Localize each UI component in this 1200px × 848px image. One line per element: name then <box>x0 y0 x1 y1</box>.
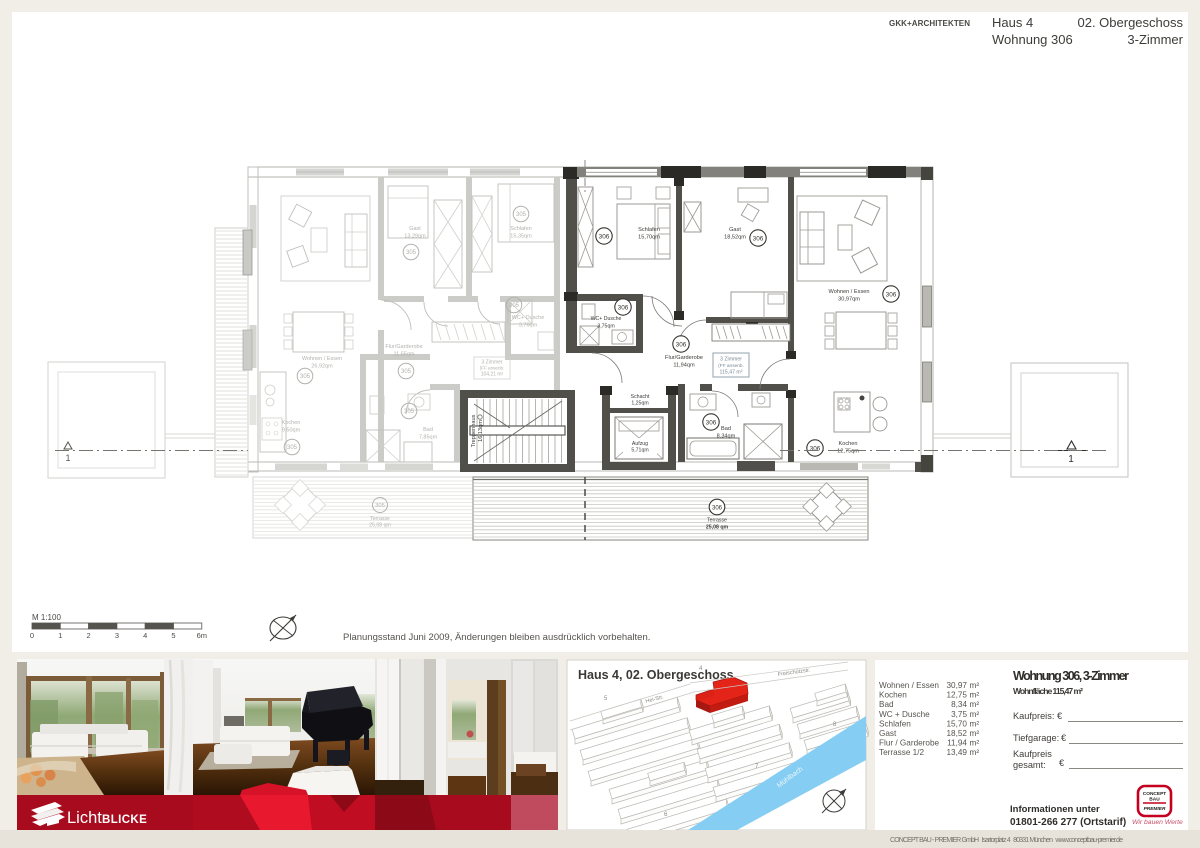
svg-text:Kaufpreis:: Kaufpreis: <box>1013 711 1054 721</box>
svg-text:15,70: 15,70 <box>947 719 968 728</box>
svg-text:18,52qm: 18,52qm <box>724 235 746 241</box>
svg-text:m²: m² <box>970 691 980 700</box>
svg-text:16,13qm: 16,13qm <box>478 420 484 442</box>
svg-text:30,97qm: 30,97qm <box>838 297 860 303</box>
svg-text:WC+ Dusche: WC+ Dusche <box>512 315 545 321</box>
svg-text:Flur/Garderobe: Flur/Garderobe <box>665 355 703 361</box>
svg-text:306: 306 <box>810 445 821 452</box>
svg-text:305: 305 <box>287 445 298 451</box>
svg-text:€: € <box>1057 711 1062 721</box>
svg-text:1: 1 <box>1068 454 1074 465</box>
svg-text:01801-266 277 (Ortstarif): 01801-266 277 (Ortstarif) <box>1010 817 1126 828</box>
svg-text:Bad: Bad <box>423 427 433 433</box>
svg-text:3-Zimmer: 3-Zimmer <box>1127 32 1183 47</box>
svg-text:15,35qm: 15,35qm <box>510 234 532 240</box>
svg-text:m²: m² <box>970 700 980 709</box>
svg-text:Haus 4: Haus 4 <box>992 15 1033 30</box>
svg-text:Kochen: Kochen <box>839 441 858 447</box>
svg-text:BLICKE: BLICKE <box>102 814 147 826</box>
svg-text:Bad: Bad <box>879 700 894 709</box>
svg-text:305: 305 <box>406 250 417 256</box>
svg-text:13,29qm: 13,29qm <box>404 234 426 240</box>
svg-text:9,50qm: 9,50qm <box>282 428 301 434</box>
svg-text:m²: m² <box>970 739 980 748</box>
svg-text:Treppenhaus: Treppenhaus <box>471 414 477 447</box>
svg-text:8,34qm: 8,34qm <box>717 434 736 440</box>
svg-text:Tiefgarage:: Tiefgarage: <box>1013 733 1059 743</box>
svg-text:Wohnung 306: Wohnung 306 <box>992 32 1073 47</box>
svg-text:CONCEPT BAU - PREMIER GmbH I: CONCEPT BAU - PREMIER GmbH Isartorplatz … <box>890 837 1123 844</box>
svg-text:Wohnen / Essen: Wohnen / Essen <box>829 289 870 295</box>
svg-text:WC+ Dusche: WC+ Dusche <box>591 316 622 322</box>
svg-text:Wohnfläche 115,47 m²: Wohnfläche 115,47 m² <box>1013 686 1083 696</box>
svg-text:25,08 qm: 25,08 qm <box>369 523 391 529</box>
svg-text:305: 305 <box>401 369 412 375</box>
svg-text:2: 2 <box>87 631 91 640</box>
svg-text:25,08 qm: 25,08 qm <box>706 525 729 531</box>
svg-text:CONCEPT: CONCEPT <box>1143 791 1167 797</box>
svg-text:12,75: 12,75 <box>947 691 968 700</box>
svg-text:Planungsstand Juni 2009, Änder: Planungsstand Juni 2009, Änderungen blei… <box>343 632 650 643</box>
svg-text:m²: m² <box>970 748 980 757</box>
svg-text:306: 306 <box>706 419 717 426</box>
svg-text:8,34: 8,34 <box>951 700 967 709</box>
svg-text:305: 305 <box>300 374 311 380</box>
svg-text:3,75qm: 3,75qm <box>597 324 614 330</box>
svg-text:Schlafen: Schlafen <box>638 227 660 233</box>
svg-text:Kaufpreis: Kaufpreis <box>1013 749 1052 759</box>
svg-text:BAU: BAU <box>1149 797 1160 803</box>
svg-text:18,52: 18,52 <box>947 729 968 738</box>
svg-text:3: 3 <box>115 631 119 640</box>
svg-text:12,75qm: 12,75qm <box>837 449 859 455</box>
svg-text:Wohnung 306, 3-Zimmer: Wohnung 306, 3-Zimmer <box>1013 669 1129 683</box>
svg-text:5,71qm: 5,71qm <box>631 448 648 454</box>
svg-text:(FF ansenb.: (FF ansenb. <box>480 366 505 371</box>
svg-text:306: 306 <box>753 235 764 242</box>
svg-text:1: 1 <box>58 631 62 640</box>
svg-text:€: € <box>1061 733 1066 743</box>
svg-text:4: 4 <box>143 631 147 640</box>
svg-text:7,85qm: 7,85qm <box>419 435 438 441</box>
svg-text:Schacht: Schacht <box>631 394 650 400</box>
svg-text:3 Zimmer: 3 Zimmer <box>720 357 742 363</box>
svg-text:Bad: Bad <box>721 426 731 432</box>
svg-text:5: 5 <box>171 631 175 640</box>
svg-text:GKK+ARCHITEKTEN: GKK+ARCHITEKTEN <box>889 19 971 28</box>
svg-text:€: € <box>1059 758 1064 768</box>
svg-text:306: 306 <box>618 304 629 311</box>
svg-text:15,70qm: 15,70qm <box>638 235 660 241</box>
svg-text:Aufzug: Aufzug <box>632 441 648 447</box>
svg-text:m²: m² <box>970 729 980 738</box>
svg-text:Schlafen: Schlafen <box>879 719 911 728</box>
svg-text:1,25qm: 1,25qm <box>631 401 648 407</box>
svg-text:Informationen unter: Informationen unter <box>1010 804 1100 815</box>
svg-text:m²: m² <box>970 681 980 690</box>
svg-text:6m: 6m <box>197 631 207 640</box>
svg-text:3,76qm: 3,76qm <box>519 323 538 329</box>
svg-text:Wir bauen Werte: Wir bauen Werte <box>1132 819 1183 826</box>
svg-text:3,75: 3,75 <box>951 710 967 719</box>
svg-text:26,92qm: 26,92qm <box>311 364 333 370</box>
svg-text:Gast: Gast <box>879 729 897 738</box>
svg-text:Haus 4, 02. Obergeschoss: Haus 4, 02. Obergeschoss <box>578 668 734 682</box>
svg-text:30,97: 30,97 <box>947 681 968 690</box>
svg-text:305: 305 <box>509 303 520 309</box>
svg-text:(FF ansenb.: (FF ansenb. <box>718 363 744 369</box>
svg-text:Flur / Garderobe: Flur / Garderobe <box>879 739 940 748</box>
svg-text:Gast: Gast <box>729 227 741 233</box>
svg-text:104,21 m²: 104,21 m² <box>481 372 504 378</box>
svg-text:Wohnen / Essen: Wohnen / Essen <box>879 681 939 690</box>
svg-text:Gast: Gast <box>409 226 421 232</box>
svg-text:Terrasse: Terrasse <box>707 518 727 524</box>
svg-text:0: 0 <box>30 631 34 640</box>
svg-text:306: 306 <box>676 341 687 348</box>
svg-text:Kochen: Kochen <box>879 691 907 700</box>
svg-text:Licht: Licht <box>67 809 102 827</box>
svg-text:115,47 m²: 115,47 m² <box>720 369 743 375</box>
svg-text:305: 305 <box>375 503 385 509</box>
svg-text:PREMIER: PREMIER <box>1144 806 1166 812</box>
svg-text:Flur/Garderobe: Flur/Garderobe <box>385 344 422 350</box>
svg-text:Kochen: Kochen <box>282 420 301 426</box>
svg-text:m²: m² <box>970 719 980 728</box>
svg-text:m²: m² <box>970 710 980 719</box>
svg-text:11,94qm: 11,94qm <box>673 363 695 369</box>
svg-text:13,49: 13,49 <box>947 748 968 757</box>
svg-text:gesamt:: gesamt: <box>1013 760 1046 770</box>
svg-text:Wohnen / Essen: Wohnen / Essen <box>302 356 342 362</box>
svg-text:1: 1 <box>65 453 70 463</box>
svg-text:11,55qm: 11,55qm <box>394 352 415 358</box>
svg-text:305: 305 <box>516 212 527 218</box>
svg-text:Terrasse 1/2: Terrasse 1/2 <box>879 748 924 757</box>
svg-text:WC + Dusche: WC + Dusche <box>879 710 930 719</box>
svg-text:Terrasse: Terrasse <box>370 516 390 522</box>
svg-text:306: 306 <box>712 505 723 511</box>
svg-text:305: 305 <box>404 409 415 415</box>
svg-text:02. Obergeschoss: 02. Obergeschoss <box>1077 15 1183 30</box>
svg-text:306: 306 <box>886 291 897 298</box>
svg-text:Schlafen: Schlafen <box>510 226 531 232</box>
svg-text:306: 306 <box>599 233 610 240</box>
svg-text:11,94: 11,94 <box>947 739 967 748</box>
svg-text:M 1:100: M 1:100 <box>32 613 61 622</box>
